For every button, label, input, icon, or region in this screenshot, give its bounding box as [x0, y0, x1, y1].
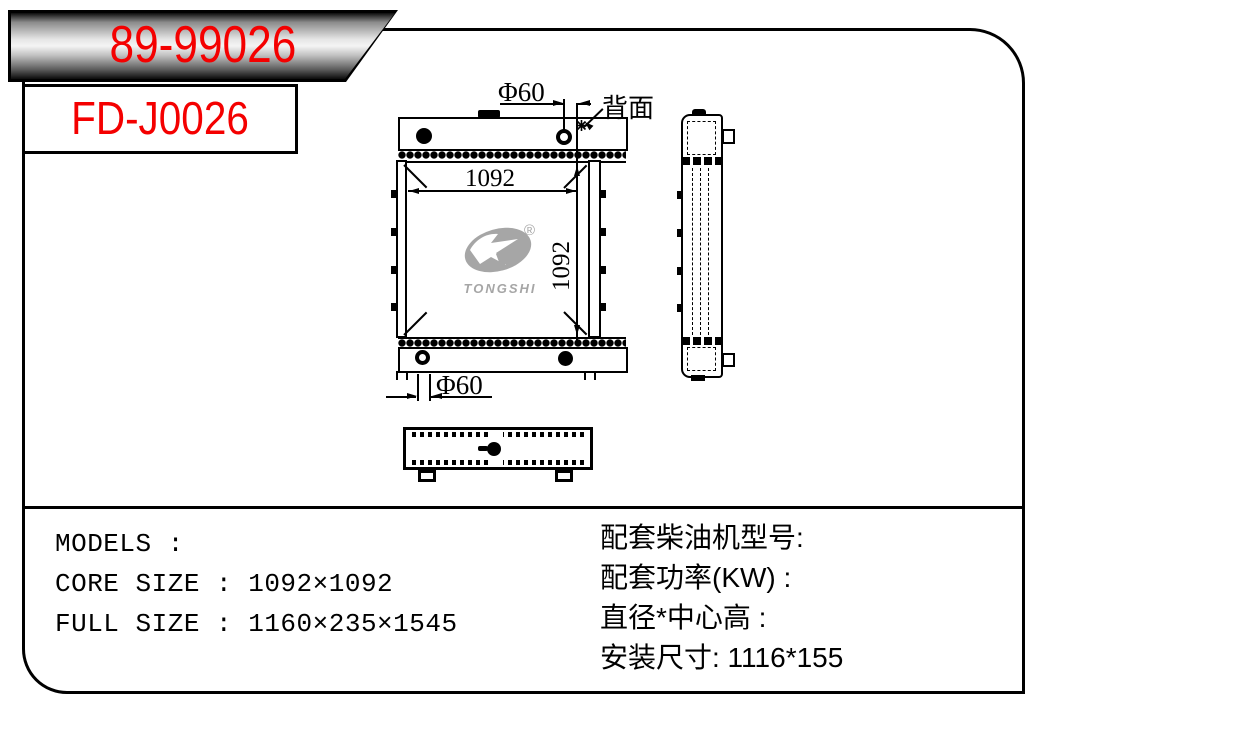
side-plate-tab	[391, 266, 397, 274]
tube-row-gap	[489, 431, 503, 438]
tube-plate-bottom	[682, 337, 722, 345]
tank-hidden-edge	[687, 121, 716, 155]
section-divider	[22, 506, 1025, 509]
side-plate-tab	[600, 303, 606, 311]
dim-line-core-height	[576, 103, 578, 345]
side-plate-tab	[600, 266, 606, 274]
tube-plate-top	[682, 157, 722, 165]
drain-plug	[487, 442, 501, 456]
tube-hidden-line	[700, 168, 701, 335]
dim-arrow	[406, 188, 419, 194]
spec-full-size: FULL SIZE : 1160×235×1545	[55, 604, 458, 644]
core-side-plate-right	[588, 160, 601, 338]
drain-cap-side	[691, 375, 705, 381]
top-tank	[398, 117, 628, 151]
side-plate-tab	[391, 303, 397, 311]
tank-hidden-edge	[687, 347, 716, 371]
registered-mark: ®	[524, 222, 535, 239]
side-bracket-top	[722, 129, 735, 144]
dim-arrow	[577, 100, 590, 106]
side-plate-tab	[677, 304, 682, 312]
secondary-part-number-box: FD-J0026	[22, 84, 298, 154]
top-tank-hole-open	[556, 129, 572, 145]
spec-models: MODELS :	[55, 524, 458, 564]
side-plate-tab	[677, 267, 682, 275]
side-plate-tab	[391, 228, 397, 236]
spec-list-cn: 配套柴油机型号: 配套功率(KW) : 直径*中心高 : 安装尺寸: 1116*…	[600, 518, 843, 678]
tube-hidden-line	[692, 168, 693, 335]
bottom-tank-hole-filled	[558, 351, 573, 366]
mount-foot	[418, 470, 436, 482]
bottom-tank	[398, 347, 628, 373]
spec-power: 配套功率(KW) :	[600, 558, 843, 598]
brand-name: TONGSHI	[452, 281, 548, 296]
mount-foot	[396, 371, 408, 380]
filler-cap-side	[692, 109, 706, 116]
side-plate-tab	[677, 229, 682, 237]
backside-label: 背面	[602, 88, 654, 125]
mount-foot	[555, 470, 573, 482]
side-plate-tab	[391, 190, 397, 198]
dim-arrow	[574, 325, 580, 338]
primary-part-number: 89-99026	[110, 13, 297, 77]
bottom-tank-hole-open	[415, 350, 430, 365]
side-plate-tab	[677, 191, 682, 199]
spec-engine-model: 配套柴油机型号:	[600, 518, 843, 558]
spec-core-size: CORE SIZE : 1092×1092	[55, 564, 458, 604]
filler-cap	[478, 110, 500, 118]
side-bracket-bottom	[722, 353, 735, 367]
dim-bottom-hole-label: Φ60	[436, 370, 483, 401]
dim-arrow	[574, 163, 580, 176]
core-side-plate-left	[396, 160, 407, 338]
side-plate-tab	[600, 190, 606, 198]
spec-mounting-size: 安装尺寸: 1116*155	[600, 638, 843, 678]
side-plate-tab	[600, 228, 606, 236]
spec-diameter-center-height: 直径*中心高 :	[600, 598, 843, 638]
tube-hidden-line	[708, 168, 709, 335]
dim-core-height-label: 1092	[548, 226, 576, 306]
tube-row-gap	[489, 459, 503, 466]
dim-core-width-label: 1092	[440, 165, 540, 193]
spec-list-en: MODELS : CORE SIZE : 1092×1092 FULL SIZE…	[55, 524, 458, 644]
mount-foot	[584, 371, 596, 380]
extension-line	[563, 99, 565, 130]
secondary-part-number: FD-J0026	[71, 87, 249, 149]
dim-arrow	[407, 393, 420, 399]
part-number-banner: 89-99026	[8, 10, 398, 82]
spec-sheet: 89-99026 FD-J0026	[0, 0, 1240, 729]
drain-plug-stem	[478, 446, 488, 451]
part-number-banner-gradient: 89-99026	[11, 13, 395, 79]
top-tank-hole-filled	[416, 128, 432, 144]
